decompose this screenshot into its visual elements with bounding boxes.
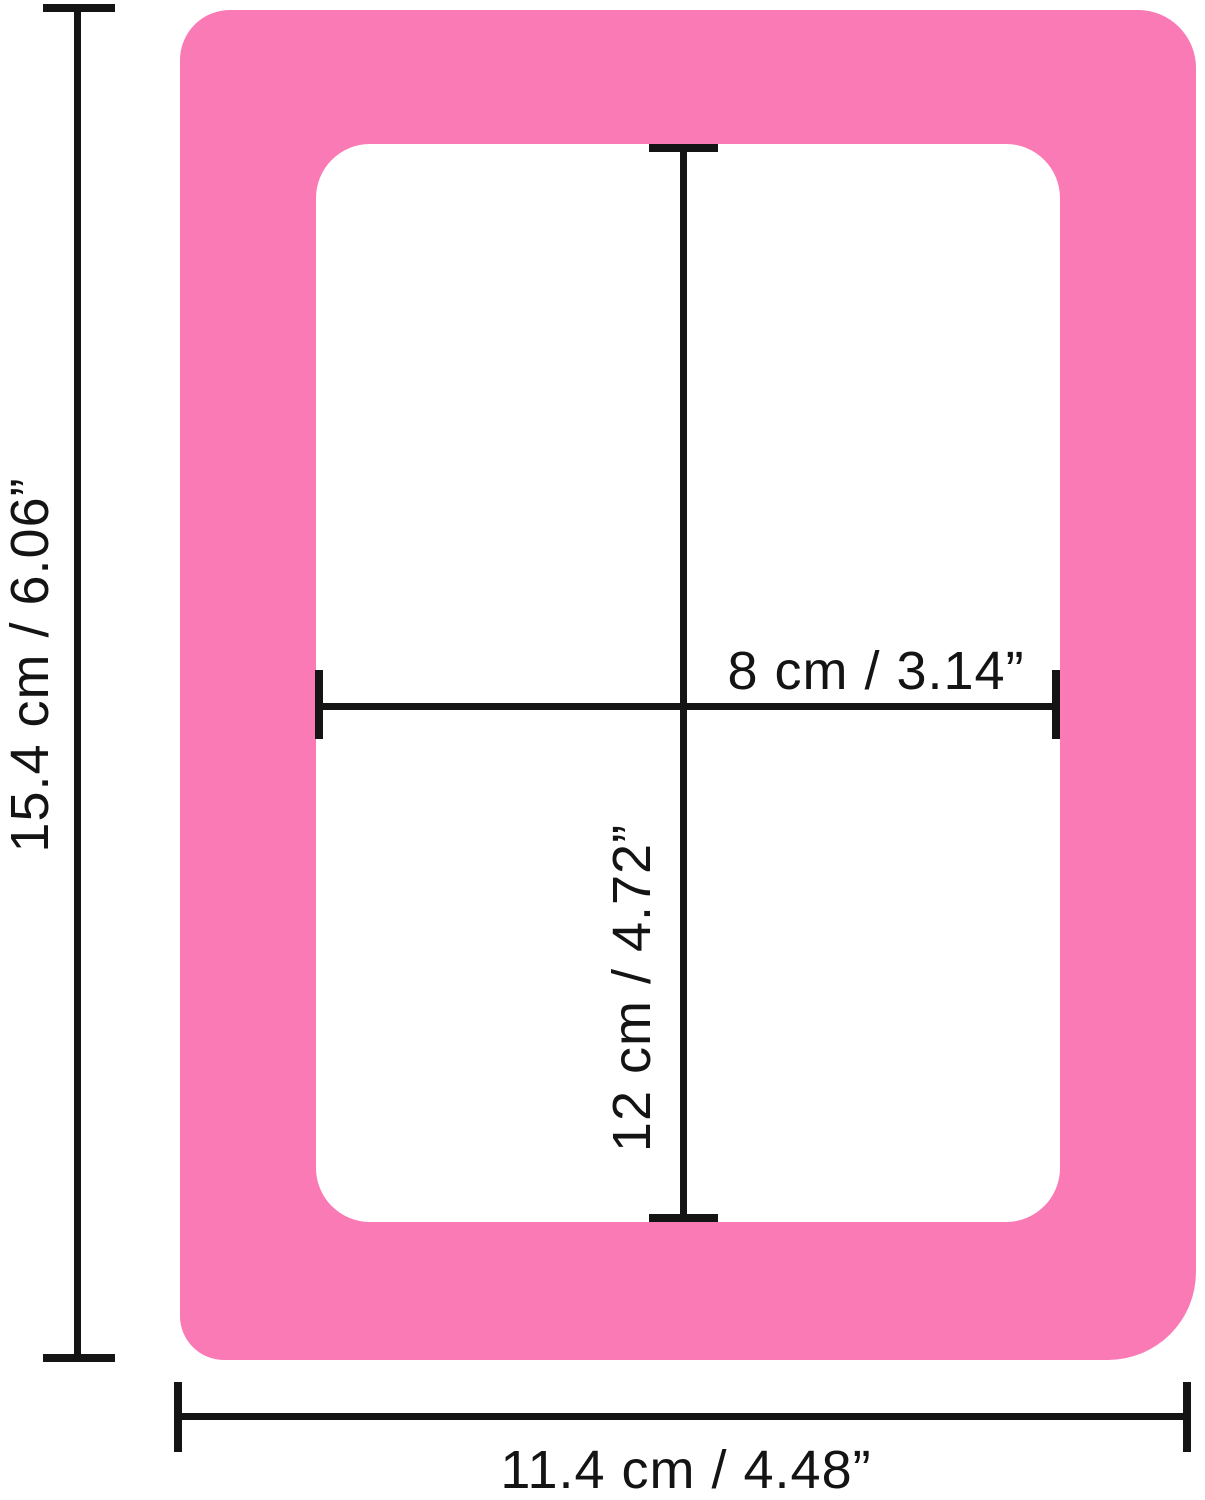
dimension-end-cap: [43, 4, 115, 12]
dimension-end-cap: [174, 1382, 182, 1452]
dimension-end-cap: [315, 670, 323, 739]
dimension-diagram: 15.4 cm / 6.06” 11.4 cm / 4.48” 8 cm / 3…: [0, 0, 1205, 1500]
dimension-label-outer-width: 11.4 cm / 4.48”: [500, 1443, 871, 1497]
dimension-end-cap: [649, 144, 718, 152]
dimension-line: [318, 703, 1058, 710]
dimension-line: [680, 146, 687, 1222]
dimension-label-inner-height: 12 cm / 4.72”: [605, 824, 659, 1152]
photo-frame: [180, 10, 1196, 1360]
dimension-end-cap: [1183, 1382, 1191, 1452]
dimension-line: [177, 1413, 1188, 1420]
dimension-label-inner-width: 8 cm / 3.14”: [727, 644, 1024, 698]
dimension-end-cap: [43, 1354, 115, 1362]
dimension-label-outer-height: 15.4 cm / 6.06”: [3, 477, 57, 852]
dimension-end-cap: [649, 1214, 718, 1222]
dimension-end-cap: [1052, 670, 1060, 739]
dimension-line: [74, 6, 81, 1362]
